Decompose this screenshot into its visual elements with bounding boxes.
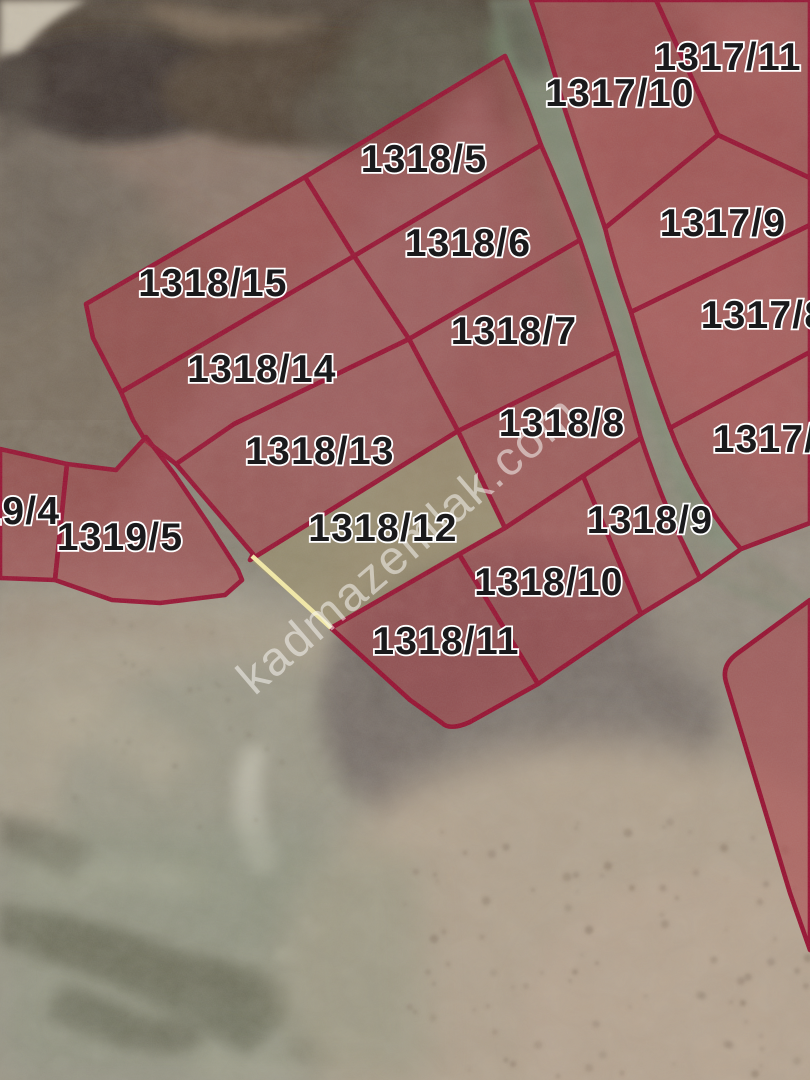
svg-text:1317/4: 1317/4	[713, 418, 810, 461]
svg-text:1318/11: 1318/11	[372, 620, 519, 663]
svg-text:1318/12: 1318/12	[308, 507, 457, 550]
svg-text:1317/8: 1317/8	[701, 294, 810, 337]
svg-text:1319/4: 1319/4	[0, 490, 60, 533]
svg-text:1318/14: 1318/14	[187, 348, 336, 391]
svg-text:1318/15: 1318/15	[138, 262, 287, 305]
svg-text:1318/8: 1318/8	[499, 402, 626, 445]
svg-text:1318/10: 1318/10	[474, 561, 623, 604]
svg-text:1319/5: 1319/5	[57, 516, 184, 559]
svg-text:1318/6: 1318/6	[405, 222, 532, 265]
svg-text:1318/9: 1318/9	[587, 499, 714, 542]
svg-text:1318/13: 1318/13	[245, 430, 394, 473]
svg-text:1317/9: 1317/9	[660, 202, 787, 245]
svg-text:1318/7: 1318/7	[451, 310, 578, 353]
svg-text:1318/5: 1318/5	[361, 138, 488, 181]
svg-text:1317/11: 1317/11	[654, 36, 801, 79]
